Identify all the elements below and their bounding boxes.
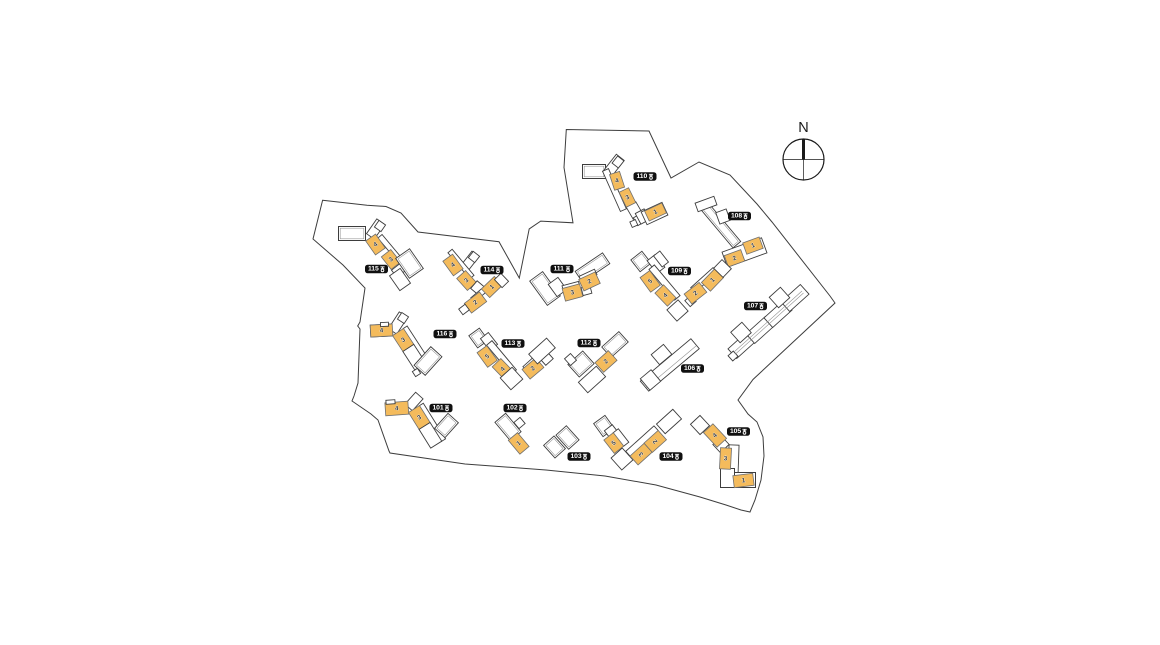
svg-text:109: 109	[671, 268, 682, 275]
svg-text:106: 106	[684, 365, 695, 372]
svg-text:111: 111	[554, 266, 565, 273]
svg-text:104: 104	[663, 453, 674, 460]
svg-text:108: 108	[731, 213, 742, 220]
svg-text:103: 103	[571, 453, 582, 460]
svg-text:115: 115	[368, 266, 379, 273]
svg-text:102: 102	[507, 405, 518, 412]
svg-text:113: 113	[505, 340, 516, 347]
svg-text:N: N	[798, 120, 808, 136]
svg-text:116: 116	[437, 331, 448, 338]
svg-text:114: 114	[484, 267, 495, 274]
svg-text:101: 101	[433, 405, 444, 412]
svg-text:110: 110	[637, 173, 648, 180]
svg-text:112: 112	[581, 340, 592, 347]
svg-text:105: 105	[730, 428, 741, 435]
svg-text:107: 107	[747, 303, 758, 310]
